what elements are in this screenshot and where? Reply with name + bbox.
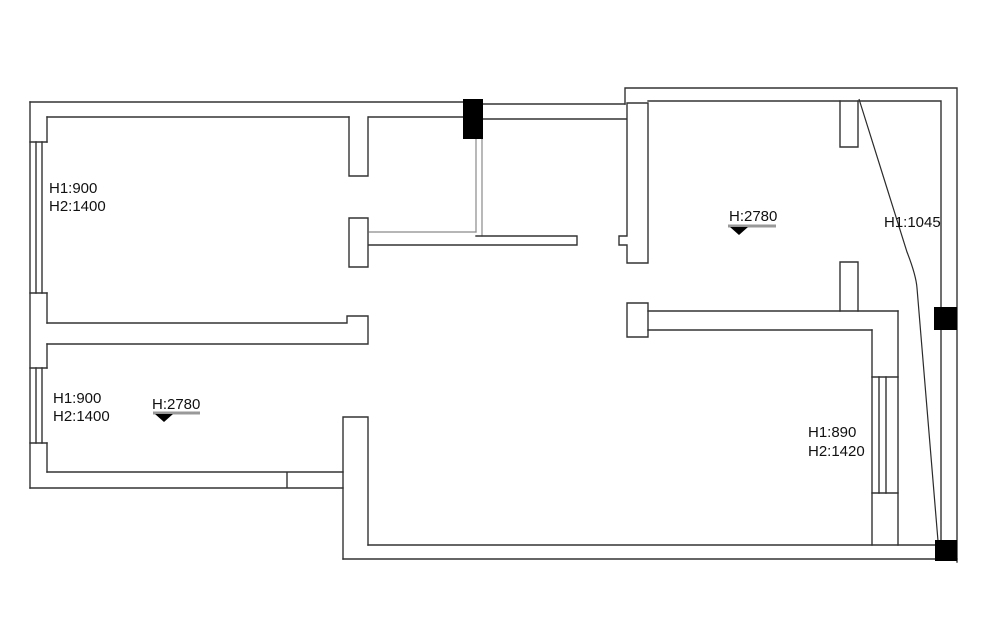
level-marker-icon-bottom-left xyxy=(153,413,200,422)
floor-plan-canvas: H1:900 H2:1400 H1:900 H2:1400 H:2780 H:2… xyxy=(0,0,981,618)
partition-right-horizontal xyxy=(627,262,898,337)
partition-left-rooms xyxy=(47,316,368,344)
label-level-bottom-left: H:2780 xyxy=(152,396,200,413)
partition-top-left-room xyxy=(349,117,368,267)
partition-right-vertical xyxy=(872,311,898,545)
window-right xyxy=(872,377,898,493)
label-window-right-h2: H2:1420 xyxy=(808,443,865,460)
window-bottom-left xyxy=(30,368,47,443)
partition-bottom-middle xyxy=(343,417,368,559)
label-window-bottom-left-h1: H1:900 xyxy=(53,390,101,407)
column-right-upper xyxy=(934,307,957,330)
window-top-left xyxy=(30,142,47,293)
column-top-center xyxy=(463,99,483,139)
partition-hallway xyxy=(369,139,577,245)
outer-walls xyxy=(30,88,957,562)
label-window-right-h1: H1:890 xyxy=(808,424,856,441)
label-level-top-right: H:2780 xyxy=(729,208,777,225)
label-slope-height: H1:1045 xyxy=(884,214,941,231)
level-marker-icon-top-right xyxy=(728,226,776,235)
label-window-bottom-left-h2: H2:1400 xyxy=(53,408,110,425)
partition-top-right-stub xyxy=(840,101,858,147)
label-window-top-left-h1: H1:900 xyxy=(49,180,97,197)
partition-top-right-room xyxy=(619,103,648,263)
column-right-lower xyxy=(935,540,957,561)
label-window-top-left-h2: H2:1400 xyxy=(49,198,106,215)
